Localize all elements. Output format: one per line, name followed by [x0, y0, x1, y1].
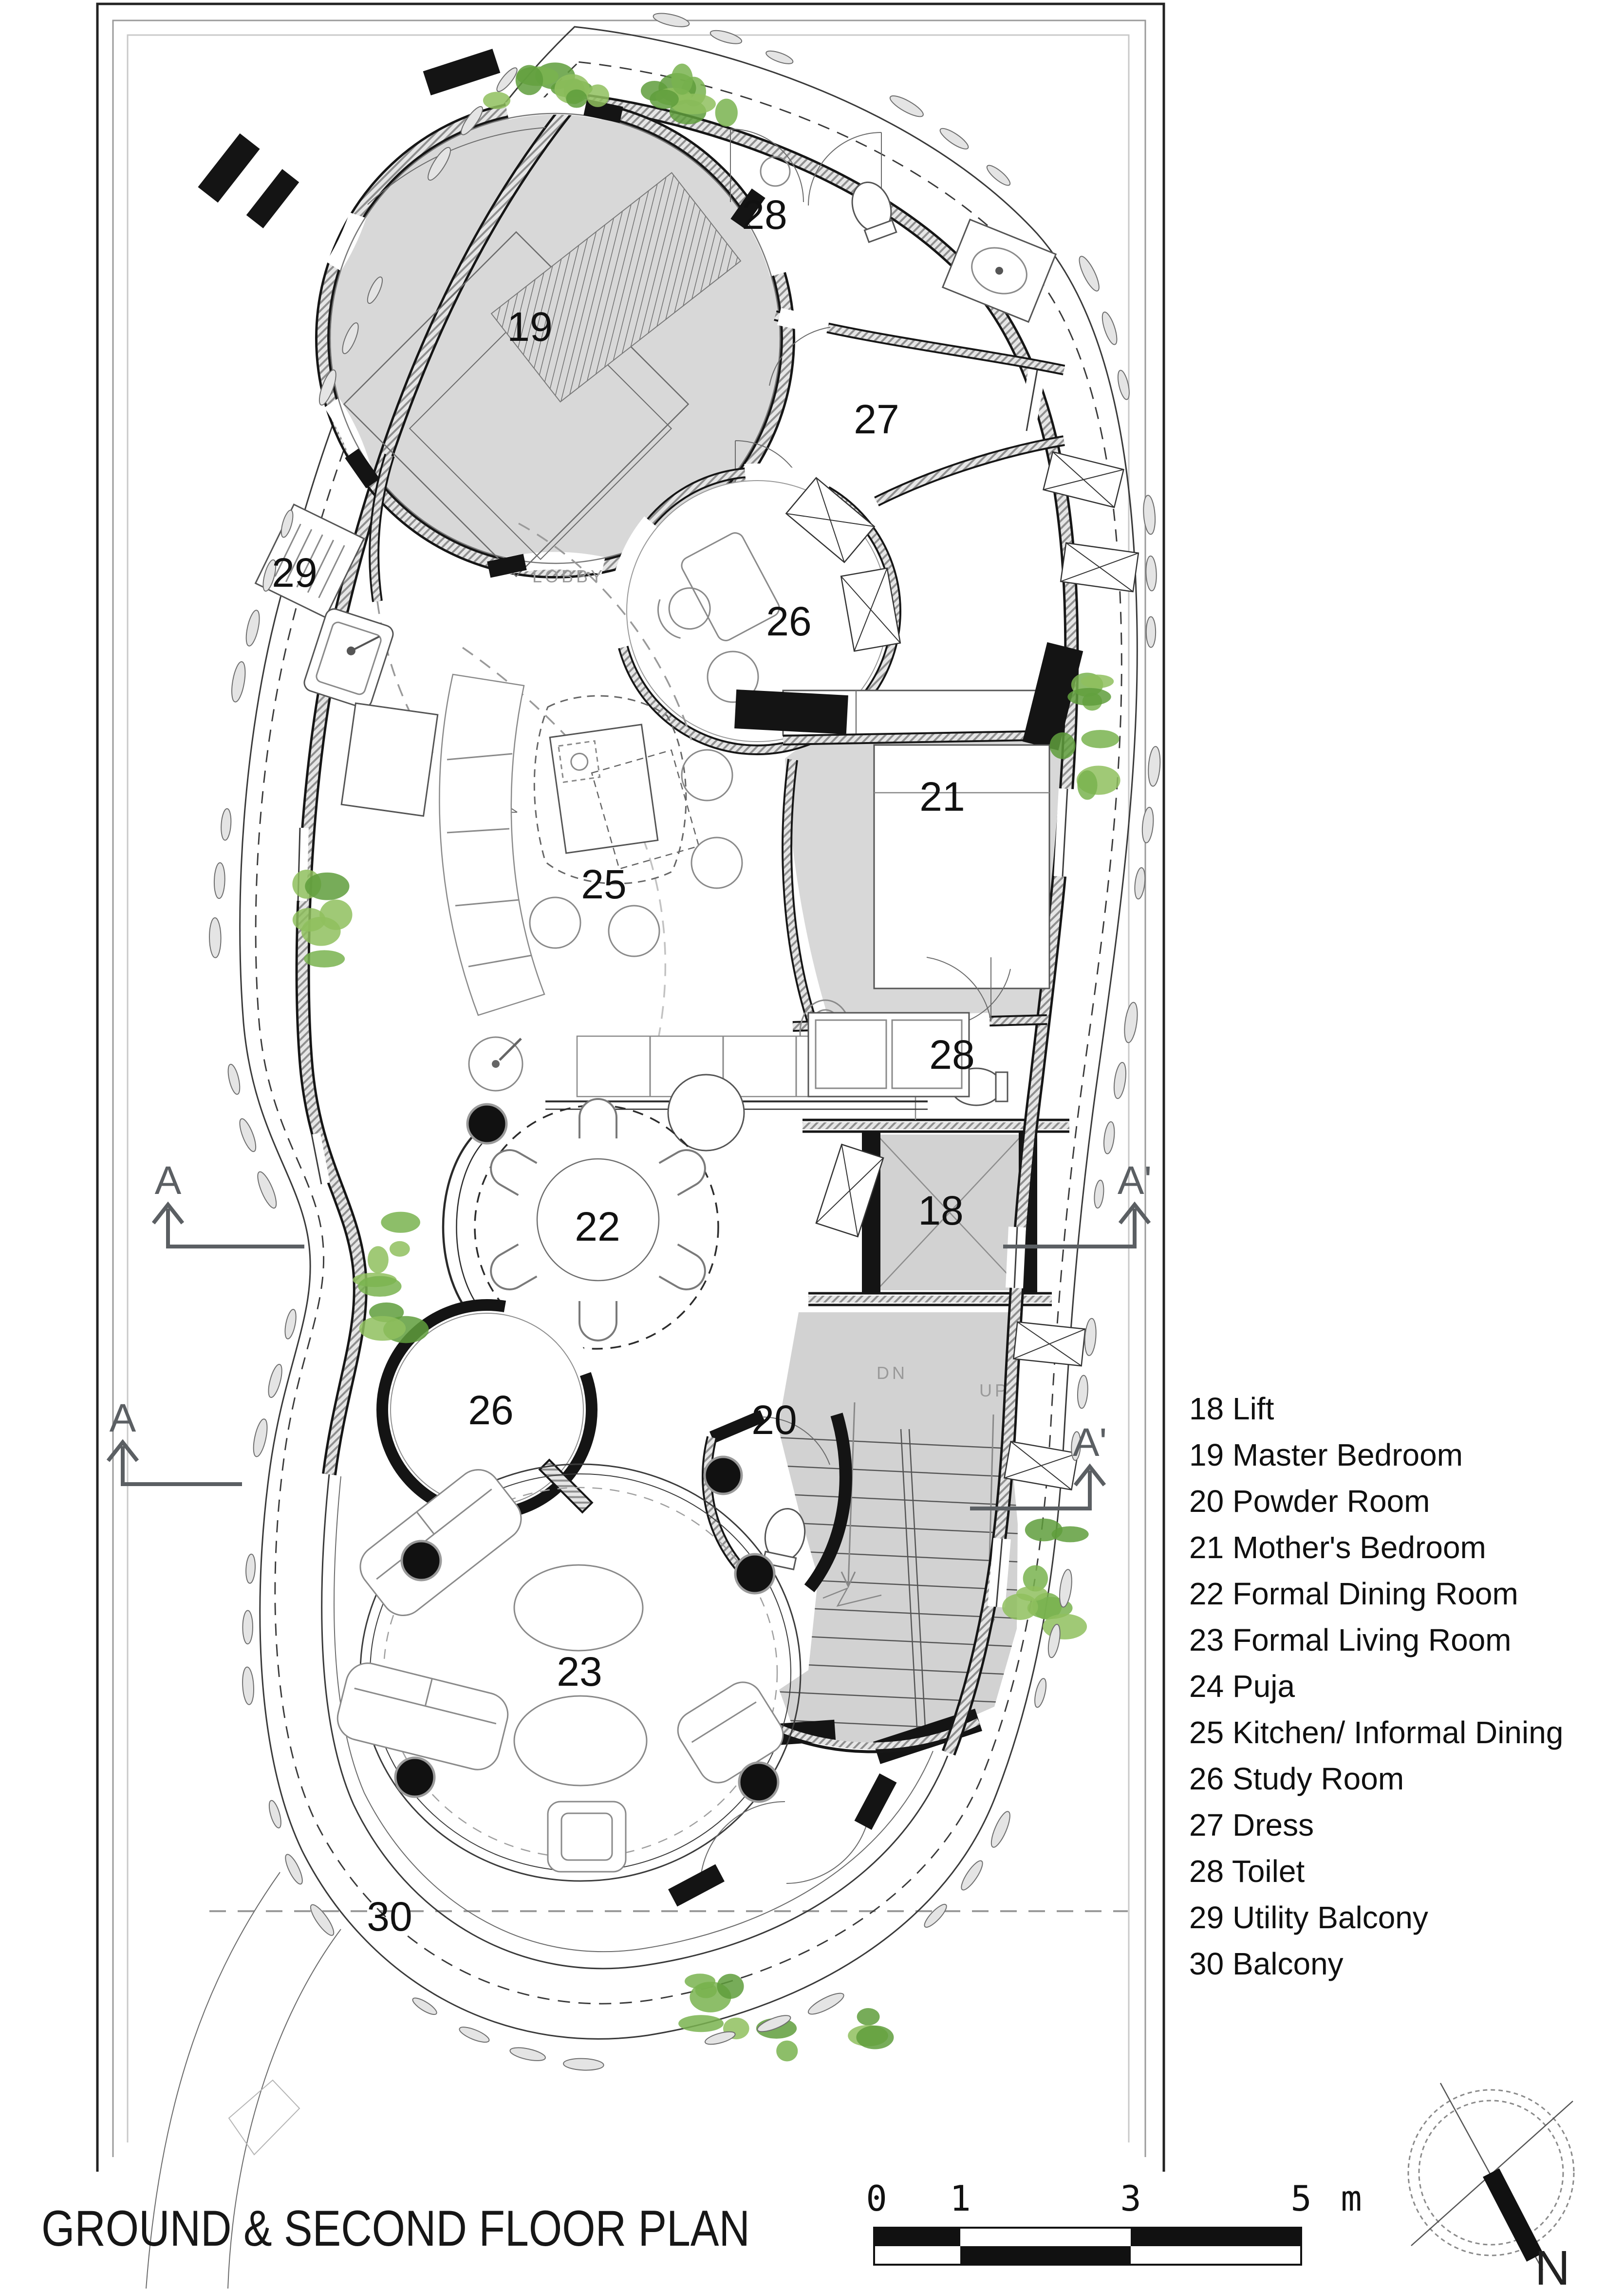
lobby-label: LOBBY: [532, 566, 605, 586]
scale-bar: 0 1 3 5 m: [866, 2178, 1362, 2265]
legend-item: 20 Powder Room: [1189, 1478, 1593, 1525]
sheet: { "title_block": { "title": "GROUND & SE…: [0, 0, 1624, 2290]
pouf: [548, 1802, 626, 1872]
room-label-22: 22: [575, 1204, 620, 1249]
room-label-26-upper: 26: [766, 598, 811, 644]
room-label-27: 27: [854, 396, 899, 442]
legend-item: 24 Puja: [1189, 1663, 1593, 1710]
scale-tick-1: 1: [950, 2178, 971, 2219]
legend: 18 Lift 19 Master Bedroom 20 Powder Room…: [1189, 1386, 1593, 1987]
room-label-19: 19: [507, 304, 552, 350]
legend-item: 19 Master Bedroom: [1189, 1432, 1593, 1478]
room-label-23: 23: [557, 1649, 602, 1694]
legend-item: 22 Formal Dining Room: [1189, 1571, 1593, 1617]
legend-item: 27 Dress: [1189, 1802, 1593, 1848]
room-label-28-top: 28: [742, 192, 787, 238]
room-label-18: 18: [918, 1188, 963, 1233]
legend-item: 23 Formal Living Room: [1189, 1617, 1593, 1663]
drawing-title: GROUND & SECOND FLOOR PLAN: [41, 2200, 750, 2257]
legend-item: 21 Mother's Bedroom: [1189, 1525, 1593, 1571]
svg-text:A: A: [110, 1396, 136, 1440]
room-label-25: 25: [581, 861, 626, 907]
north-compass: N: [1408, 2083, 1574, 2290]
scale-tick-0: 0: [866, 2178, 887, 2219]
stair-dn-label: DN: [877, 1363, 908, 1383]
legend-item: 25 Kitchen/ Informal Dining: [1189, 1710, 1593, 1756]
room-label-28-lower: 28: [929, 1032, 974, 1078]
room-label-21: 21: [919, 774, 965, 819]
north-label: N: [1535, 2241, 1570, 2290]
svg-text:A: A: [155, 1158, 182, 1203]
legend-item: 26 Study Room: [1189, 1756, 1593, 1802]
legend-item: 18 Lift: [1189, 1386, 1593, 1432]
room-label-26-lower: 26: [468, 1387, 513, 1433]
section-marker-a-upper: A: [153, 1158, 304, 1247]
legend-item: 30 Balcony: [1189, 1941, 1593, 1987]
room-label-29: 29: [272, 550, 317, 596]
scale-tick-5: 5: [1290, 2178, 1311, 2219]
room-label-30: 30: [367, 1894, 412, 1939]
scale-unit: m: [1341, 2178, 1362, 2219]
room-label-20: 20: [751, 1397, 797, 1443]
north-needle: [1491, 2173, 1535, 2257]
svg-text:A': A': [1118, 1158, 1152, 1203]
legend-item: 29 Utility Balcony: [1189, 1895, 1593, 1941]
scale-tick-3: 3: [1120, 2178, 1141, 2219]
legend-item: 28 Toilet: [1189, 1848, 1593, 1895]
sofa: [333, 1658, 513, 1774]
svg-text:A': A': [1073, 1420, 1107, 1465]
